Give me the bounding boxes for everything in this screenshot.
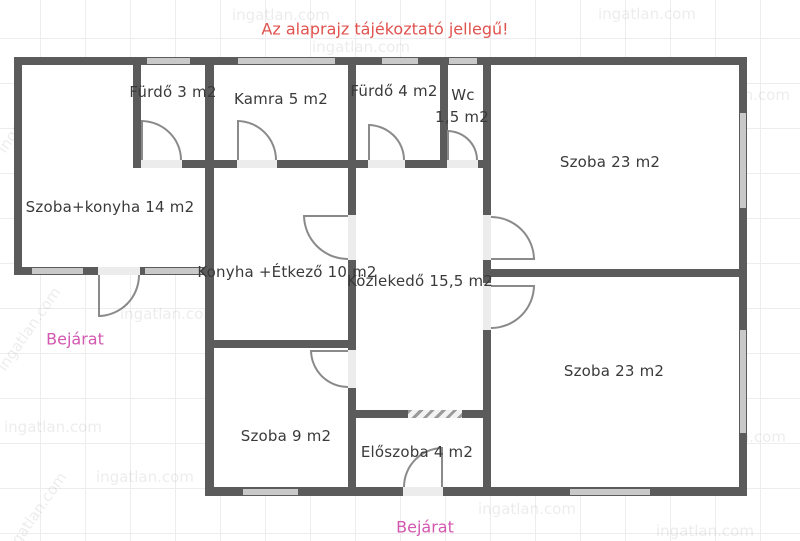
room-label-szoba-konyha: Szoba+konyha 14 m2 — [26, 198, 195, 216]
door-opening-furdo4 — [368, 160, 405, 168]
floorplan-canvas: ingatlan.com ingatlan.com ingatlan.com i… — [0, 0, 800, 541]
window-szoba-konyha-2 — [145, 268, 202, 274]
window-szoba23-felso — [740, 113, 746, 208]
room-label-eloszoba: Előszoba 4 m2 — [361, 443, 473, 461]
plan-disclaimer-title: Az alaprajz tájékoztató jellegű! — [261, 20, 508, 39]
door-opening-bejarat-bottom — [403, 487, 443, 496]
door-leaf-bejarat-left — [98, 275, 100, 317]
watermark: ingatlan.com — [120, 305, 218, 323]
wall-konyha-szoba9-divider — [214, 340, 348, 348]
window-kamra — [238, 58, 335, 64]
glazed-partition-eloszoba — [408, 410, 462, 418]
room-label-wc-area: 1,5 m2 — [435, 108, 489, 126]
window-furdo3 — [147, 58, 190, 64]
wall-furdo3-west — [133, 57, 141, 168]
wall-left-wing-west — [14, 57, 22, 275]
door-leaf-konyha — [303, 215, 348, 217]
door-leaf-wc — [447, 130, 449, 160]
door-opening-wc — [447, 160, 478, 168]
room-label-szoba23-felso: Szoba 23 m2 — [560, 153, 660, 171]
window-szoba23-also-east — [740, 330, 746, 433]
window-furdo4 — [382, 58, 418, 64]
door-leaf-furdo4 — [368, 124, 370, 160]
wall-eloszoba-north-right — [462, 410, 483, 418]
door-arc-bejarat-left — [98, 275, 140, 317]
door-opening-furdo3 — [141, 160, 182, 168]
room-label-kozlekedo: Közlekedő 15,5 m2 — [347, 272, 493, 290]
room-label-szoba9: Szoba 9 m2 — [241, 427, 332, 445]
door-leaf-szoba23-also — [491, 285, 535, 287]
wall-top — [14, 57, 747, 65]
room-label-wc: Wc — [451, 86, 474, 104]
watermark: ingatlan.com — [96, 468, 194, 486]
door-leaf-szoba9 — [310, 350, 348, 352]
watermark: ingatlan.com — [4, 418, 102, 436]
wall-szoba-divider — [483, 269, 747, 277]
entrance-label-left: Bejárat — [46, 330, 104, 349]
entrance-label-bottom: Bejárat — [396, 518, 454, 537]
window-wc — [449, 58, 477, 64]
watermark: ingatlan.com — [0, 469, 70, 541]
wall-eloszoba-north-left — [356, 410, 408, 418]
door-leaf-kamra — [237, 120, 239, 160]
watermark: ingatlan.com — [312, 38, 410, 56]
watermark: ingatlan.com — [598, 5, 696, 23]
door-opening-konyha — [348, 215, 356, 260]
window-szoba9 — [243, 489, 298, 495]
window-szoba-konyha-1 — [32, 268, 83, 274]
door-opening-szoba23-felso — [483, 215, 491, 260]
room-label-furdo3: Fürdő 3 m2 — [129, 83, 216, 101]
door-opening-bejarat-left — [98, 267, 140, 275]
room-label-szoba23-also: Szoba 23 m2 — [564, 362, 664, 380]
watermark: ingatlan.com — [478, 500, 576, 518]
room-label-furdo4: Fürdő 4 m2 — [350, 82, 437, 100]
watermark: ingatlan.com — [656, 522, 754, 540]
door-opening-szoba9 — [348, 350, 356, 388]
window-szoba23-also-south — [570, 489, 650, 495]
door-leaf-furdo3 — [141, 120, 143, 160]
room-label-kamra: Kamra 5 m2 — [234, 90, 328, 108]
door-leaf-szoba23-felso — [491, 258, 535, 260]
wall-toprow-south — [133, 160, 483, 168]
door-opening-szoba23-also — [483, 283, 491, 330]
door-opening-kamra — [237, 160, 277, 168]
